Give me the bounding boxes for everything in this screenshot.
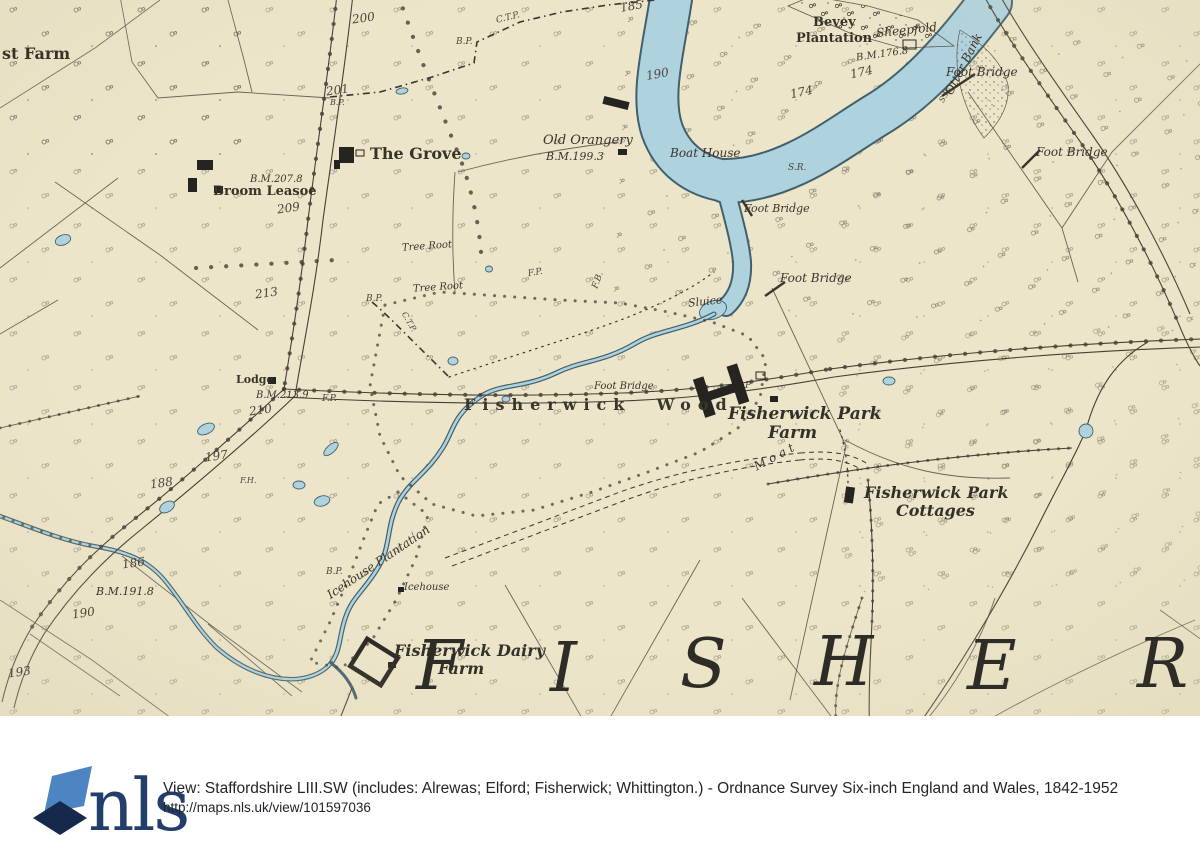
map-label: Tree Root <box>413 281 464 294</box>
map-label: B.M.213.9 <box>256 391 309 401</box>
map-label: B.M.199.3 <box>546 151 604 162</box>
map-label: Icehouse <box>404 583 449 593</box>
map-label: 190 <box>645 66 670 82</box>
map-label: 174 <box>789 84 814 101</box>
map-label: F.P. <box>527 268 543 279</box>
map-label: S <box>680 631 727 699</box>
map-label: S.R. <box>788 164 806 173</box>
map-label: S.P. <box>938 88 952 104</box>
map-label: 186 <box>121 555 145 570</box>
map-label: R <box>1137 631 1188 699</box>
map-label: st Farm <box>2 46 70 62</box>
map-label: Broom Leasoe <box>213 185 317 198</box>
map-label: The Grove <box>370 146 462 162</box>
map-label: E <box>967 633 1017 701</box>
map-label: 185 <box>619 0 644 14</box>
map-view-title: View: Staffordshire LIII.SW (includes: A… <box>163 778 1200 799</box>
map-label: Fisherwick Wood <box>464 397 734 413</box>
map-label: Foot Bridge <box>780 272 852 284</box>
map-label: 193 <box>7 664 31 679</box>
map-label: Fisherwick Park <box>728 406 881 423</box>
map-label: Sheepfold <box>876 21 938 39</box>
map-label: Foot Bridge <box>946 66 1018 78</box>
map-label: H <box>814 629 873 697</box>
map-label: B.M.176.8 <box>856 46 909 63</box>
map-label: B.P. <box>366 295 383 304</box>
map-label: 213 <box>254 285 278 300</box>
map-label: 197 <box>204 448 228 463</box>
map-label: 209 <box>276 200 300 215</box>
map-label: B.P. <box>456 38 473 47</box>
map-view: st Farm200C.T.P.B.P.185190201B.P.BeveyPl… <box>0 0 1200 716</box>
map-label: F <box>416 633 463 701</box>
map-label: F.H. <box>240 477 256 485</box>
map-label: 200 <box>351 10 375 25</box>
map-label: Foot Bridge <box>594 382 654 392</box>
attribution-text: View: Staffordshire LIII.SW (includes: A… <box>163 778 1200 817</box>
map-label: F.P. <box>322 395 337 404</box>
map-label: Plantation <box>796 32 872 45</box>
map-label: Foot Bridge <box>1036 146 1108 158</box>
map-label: 188 <box>149 475 173 490</box>
map-label: 174 <box>849 64 874 81</box>
map-label: Tree Root <box>402 240 453 253</box>
map-label: 201 <box>325 82 349 97</box>
map-label: Sluice <box>688 294 723 309</box>
map-label: Old Orangery <box>543 134 633 147</box>
attribution-footer: nls View: Staffordshire LIII.SW (include… <box>0 716 1200 848</box>
map-label: B.P. <box>326 568 343 577</box>
map-label: Lodge <box>236 374 273 385</box>
map-label: Fisherwick Park <box>864 485 1008 501</box>
map-label: Foot Bridge <box>744 203 810 214</box>
map-label: Bevey <box>813 16 856 29</box>
map-label: Cottages <box>896 503 975 519</box>
map-label: P <box>745 382 751 391</box>
map-label: Otter Bank <box>943 31 984 96</box>
map-label: 190 <box>71 605 95 620</box>
map-label: C.T.P. <box>495 11 521 26</box>
map-label: F.B. <box>591 271 605 290</box>
page: st Farm200C.T.P.B.P.185190201B.P.BeveyPl… <box>0 0 1200 848</box>
map-label: Boat House <box>670 147 741 159</box>
map-label: B.P. <box>330 99 345 107</box>
map-label: C.T.P. <box>400 311 418 334</box>
map-labels-layer: st Farm200C.T.P.B.P.185190201B.P.BeveyPl… <box>0 0 1200 716</box>
map-label: 210 <box>248 402 272 417</box>
map-label: Moat <box>752 440 800 473</box>
map-view-url: http://maps.nls.uk/view/101597036 <box>163 799 1200 817</box>
map-label: B.M.191.8 <box>96 586 154 597</box>
map-label: I <box>550 635 577 703</box>
